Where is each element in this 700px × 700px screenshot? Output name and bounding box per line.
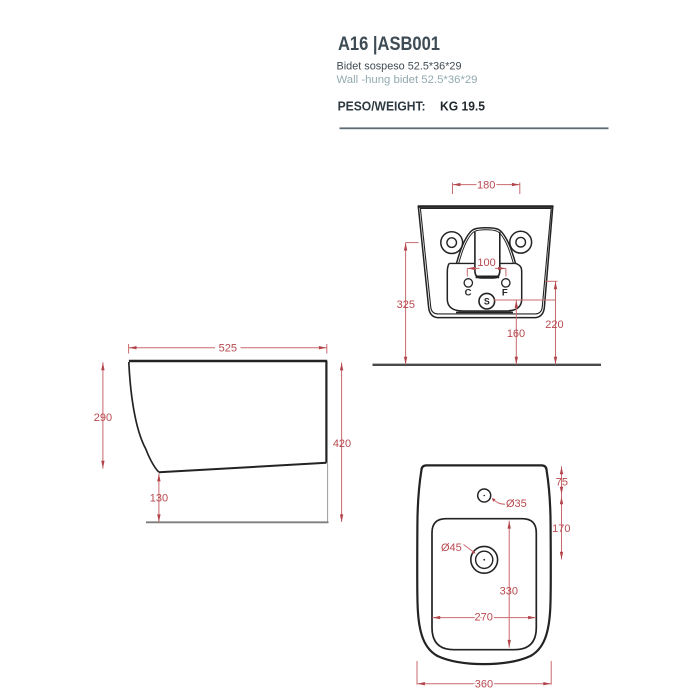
svg-text:C: C (465, 288, 472, 299)
svg-text:KG 19.5: KG 19.5 (440, 98, 485, 113)
svg-text:525: 525 (219, 343, 237, 355)
svg-text:A16 |ASB001: A16 |ASB001 (338, 33, 440, 55)
svg-text:F: F (502, 288, 508, 299)
svg-text:PESO/WEIGHT:: PESO/WEIGHT: (338, 98, 426, 113)
svg-text:130: 130 (150, 493, 168, 505)
svg-text:270: 270 (475, 612, 493, 624)
svg-text:Wall -hung bidet 52.5*36*29: Wall -hung bidet 52.5*36*29 (337, 74, 478, 86)
svg-text:420: 420 (333, 438, 351, 450)
svg-text:330: 330 (500, 586, 518, 598)
svg-text:75: 75 (556, 476, 568, 488)
svg-text:325: 325 (397, 299, 415, 311)
svg-text:170: 170 (552, 523, 570, 535)
svg-text:290: 290 (94, 412, 112, 424)
svg-text:360: 360 (475, 679, 493, 691)
svg-text:100: 100 (477, 257, 495, 269)
svg-text:220: 220 (545, 319, 563, 331)
svg-text:Bidet sospeso 52.5*36*29: Bidet sospeso 52.5*36*29 (337, 60, 462, 72)
svg-text:160: 160 (507, 328, 525, 340)
svg-text:180: 180 (477, 180, 495, 192)
svg-text:Ø35: Ø35 (506, 498, 527, 510)
svg-text:Ø45: Ø45 (441, 542, 462, 554)
svg-text:S: S (484, 297, 490, 307)
